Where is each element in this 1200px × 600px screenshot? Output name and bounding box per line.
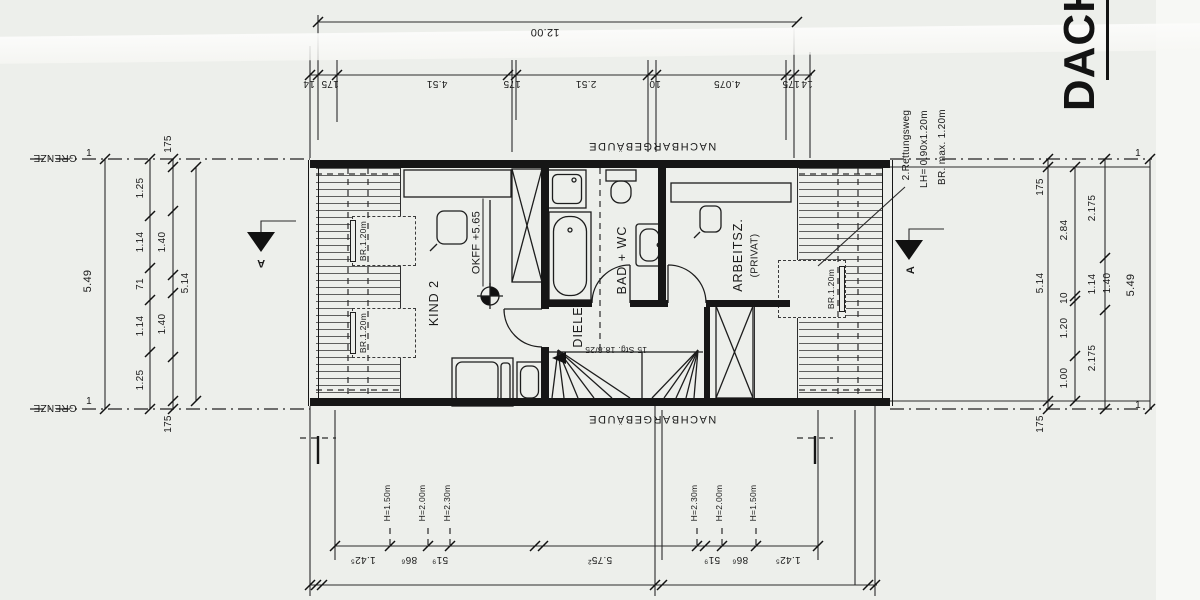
dim-label: 2.175 — [1086, 192, 1098, 224]
wardrobe-kind2 — [512, 169, 542, 282]
roof-height-label: H=1.50m — [381, 477, 393, 529]
shower-icon — [548, 170, 586, 208]
nightstand-kind2 — [517, 362, 542, 402]
sheet-title-underline — [1106, 0, 1109, 80]
wc-icon — [606, 170, 636, 203]
dim-label: 2.175 — [1086, 342, 1098, 374]
dim-label: 2.84 — [1058, 216, 1070, 244]
dim-label: 5.14 — [1034, 269, 1046, 297]
roof-height-label: H=2.30m — [441, 477, 453, 529]
stairs-label: 15 Stg. 18.8/25 — [576, 344, 656, 356]
dim-label: 14 — [300, 78, 318, 90]
desk-arbeitszimmer — [671, 183, 791, 202]
floor-plan-linework — [0, 0, 1200, 600]
dim-label: 4.075 — [710, 78, 744, 90]
dormer-width-label: BR.1.20m — [357, 217, 369, 265]
neighbor-label-top: NACHBARGEBÄUDE — [586, 140, 718, 152]
wall-kind2-stairs — [541, 347, 549, 406]
dim-label: 4.51 — [422, 78, 452, 90]
wall-arbeitsz-south-1 — [658, 300, 668, 307]
dim-label: 175 — [162, 133, 174, 155]
room-label-kind2: KIND 2 — [428, 271, 440, 335]
dim-label: 71 — [134, 274, 146, 294]
wall-stairs-east — [704, 307, 710, 398]
dim-label: 86⁶ — [729, 554, 751, 566]
shelf-kind2 — [404, 170, 511, 197]
dim-label: 1.40 — [156, 310, 168, 338]
bathtub-icon — [549, 212, 591, 300]
dim-label: 1.00 — [1058, 364, 1070, 392]
boundary-mark: 1 — [84, 395, 94, 407]
roof-height-label: H=2.30m — [688, 477, 700, 529]
roof-height-label: H=1.50m — [747, 477, 759, 529]
section-letter-right: A — [905, 263, 917, 277]
wall-arbeitsz-south-2 — [706, 300, 790, 307]
level-label-okff: OKFF +5.65 — [471, 199, 484, 287]
dormer-width-label: BR.1.20m — [357, 309, 369, 357]
dim-top-total: 12.00 — [525, 26, 565, 38]
wall-east — [882, 160, 893, 406]
dim-label: 10 — [647, 78, 663, 90]
wall-north — [310, 160, 890, 168]
boundary-mark: 1 — [84, 147, 94, 159]
wall-south — [310, 398, 890, 406]
dormer-width-label: BR.1.20m — [825, 265, 837, 313]
room-label-privat: (PRIVAT) — [750, 225, 761, 287]
dim-label: 1.14 — [134, 228, 146, 256]
dim-label: 1.25 — [134, 366, 146, 394]
dim-label: 2.51 — [571, 78, 601, 90]
dim-label: 1.14 — [134, 312, 146, 340]
dim-label: 1.25 — [134, 174, 146, 202]
boundary-mark: 1 — [1133, 147, 1143, 159]
door-arbeitszimmer — [668, 265, 706, 303]
chair-arbeitszimmer — [694, 206, 721, 238]
dim-label: 175 — [1034, 413, 1046, 435]
room-label-arbeitszimmer: ARBEITSZ. — [732, 213, 744, 297]
dim-label: 51⁹ — [429, 554, 451, 566]
section-marker-left — [247, 221, 296, 252]
roof-height-label: H=2.00m — [713, 477, 725, 529]
door-kind2 — [504, 309, 542, 347]
dim-label: 1.40 — [156, 228, 168, 256]
chair-kind2 — [430, 211, 467, 251]
dim-left-total: 5.49 — [82, 264, 94, 298]
dim-label: 1.40 — [1101, 269, 1113, 297]
dim-label: 5.14 — [179, 269, 191, 297]
dim-label: 175 — [162, 413, 174, 435]
dim-label: 10 — [1058, 289, 1070, 307]
dim-label: 14 — [798, 78, 816, 90]
grenze-label-top: GRENZE — [29, 152, 81, 164]
section-letter-left: A — [254, 257, 268, 269]
dim-label: 51⁹ — [701, 554, 723, 566]
wardrobe-diele — [716, 306, 753, 398]
dim-label: 1.42⁵ — [773, 554, 803, 566]
staircase — [541, 350, 703, 398]
dim-right-total: 5.49 — [1125, 268, 1137, 302]
dim-label: 86⁶ — [398, 554, 420, 566]
floor-plan-sheet: DACHG GRENZE GRENZE NACHBARGEBÄUDE NACHB… — [0, 0, 1200, 600]
boundary-mark: 1 — [1133, 399, 1143, 411]
rescue-line3: BR. max. 1.20m — [936, 101, 948, 193]
section-marker-right — [895, 229, 944, 260]
wall-bad-arbeitszimmer — [658, 168, 666, 307]
dim-label: 1.42⁵ — [348, 554, 378, 566]
wall-west — [308, 160, 319, 406]
neighbor-label-bottom: NACHBARGEBÄUDE — [586, 413, 718, 425]
roof-height-label: H=2.00m — [416, 477, 428, 529]
wall-kind2-bad — [541, 168, 549, 309]
dim-label: 5.75² — [583, 554, 617, 566]
grenze-label-bottom: GRENZE — [29, 402, 81, 414]
dim-label: 1.14 — [1086, 270, 1098, 298]
sheet-title: DACHG — [1050, 0, 1110, 93]
dim-label: 175 — [1034, 176, 1046, 198]
rescue-line2: LH= 0.90x1.20m — [918, 102, 930, 196]
dim-label: 175 — [319, 78, 341, 90]
rescue-line1: 2.Rettungsweg — [900, 101, 912, 189]
dim-label: 175 — [501, 78, 523, 90]
dim-label: 1.20 — [1058, 314, 1070, 342]
room-label-bad: BAD + WC — [616, 218, 628, 302]
